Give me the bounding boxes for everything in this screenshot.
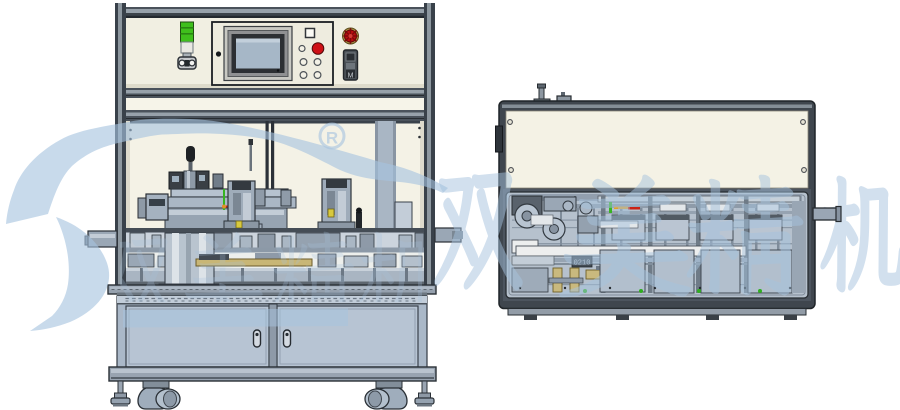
svg-text:M: M xyxy=(348,73,354,80)
svg-text:R: R xyxy=(326,129,338,148)
